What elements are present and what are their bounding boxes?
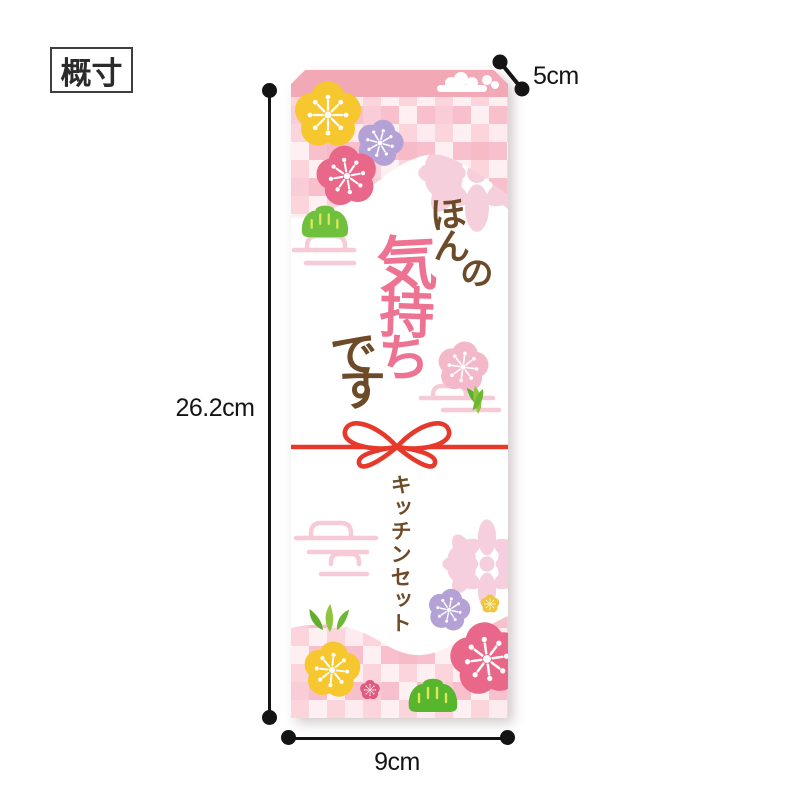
message-char: す	[339, 366, 386, 413]
width-dimension-line	[288, 737, 507, 740]
product-dimension-diagram: 概寸 26.2cm 9cm 5cm	[0, 0, 800, 800]
dimension-endpoint-dot	[281, 730, 296, 745]
dimension-endpoint-dot	[262, 710, 277, 725]
dimension-endpoint-dot	[493, 55, 508, 70]
product-name-label: キッチンセット	[388, 474, 411, 649]
message-char: ち	[378, 332, 431, 385]
message-char: の	[458, 254, 495, 291]
flap-dimension-label: 5cm	[533, 62, 603, 91]
dimension-endpoint-dot	[262, 83, 277, 98]
dimension-endpoint-dot	[515, 82, 530, 97]
height-dimension-label: 26.2cm	[155, 394, 275, 423]
width-dimension-label: 9cm	[337, 748, 457, 777]
dimension-endpoint-dot	[500, 730, 515, 745]
gift-envelope: ほ ん の 気 持 ち で す キッチンセット	[291, 70, 508, 718]
approx-size-label: 概寸	[50, 47, 133, 93]
